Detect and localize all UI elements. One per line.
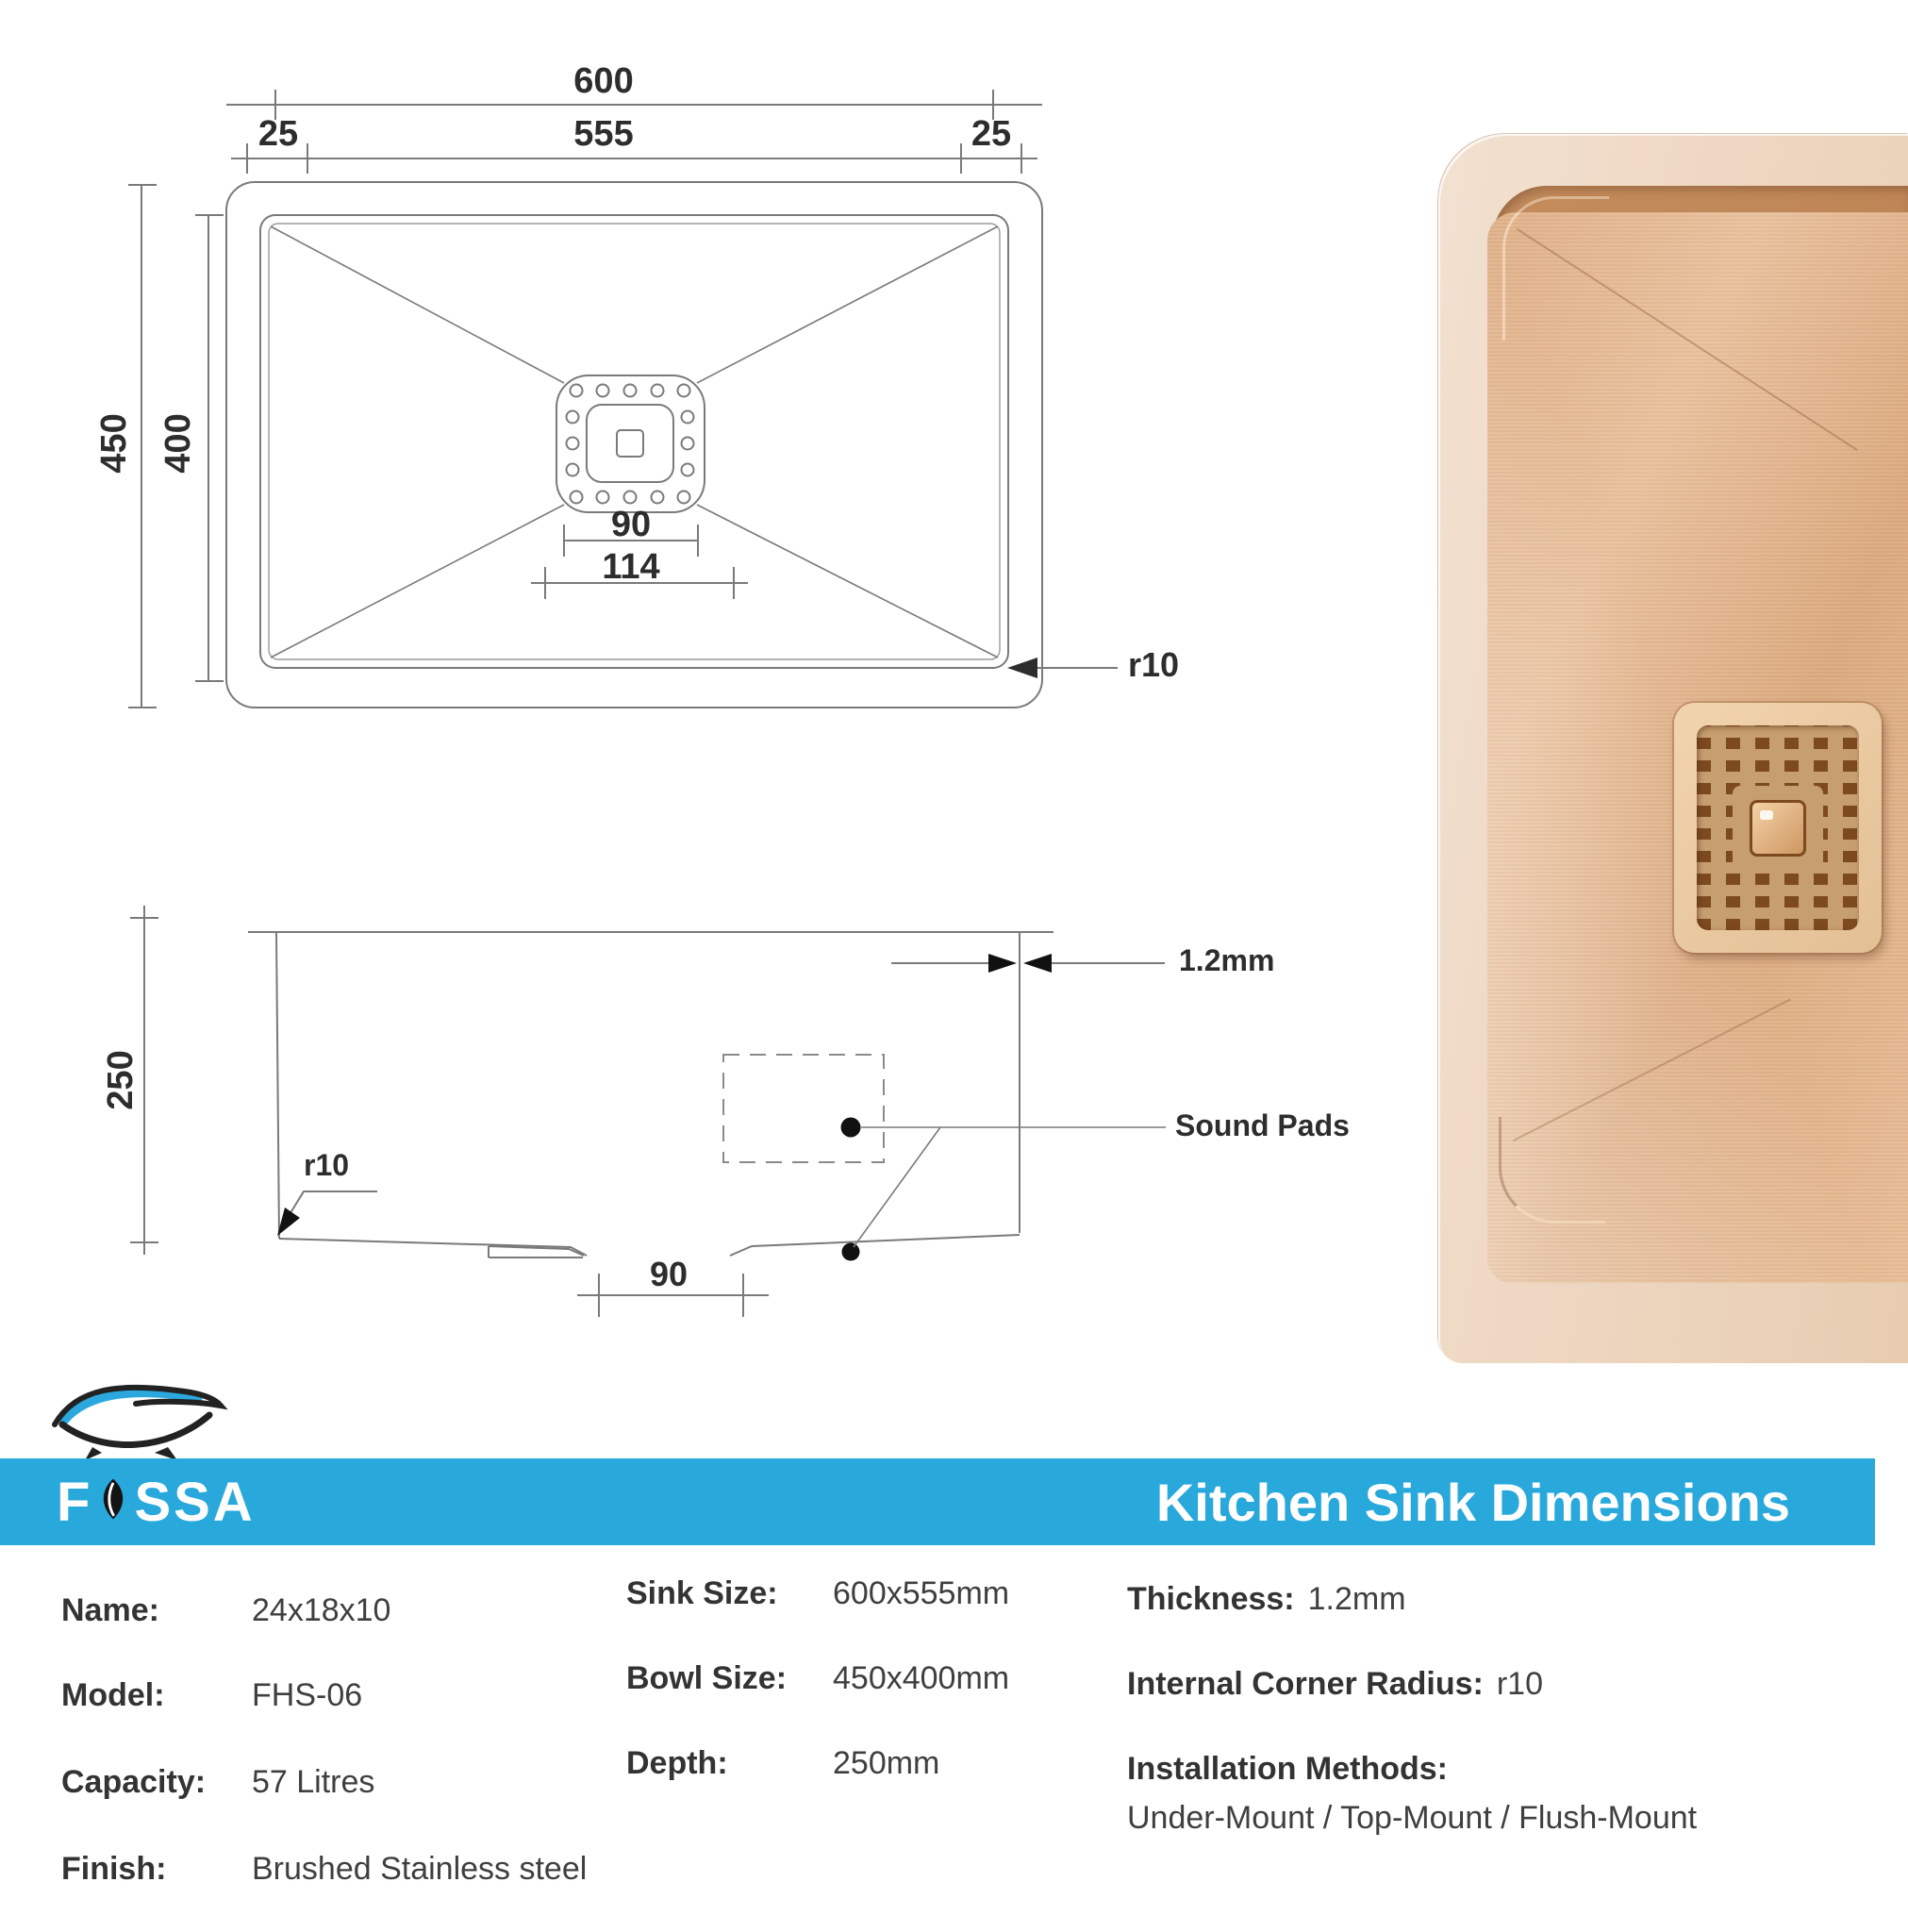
page-title: Kitchen Sink Dimensions: [1000, 1458, 1849, 1545]
spec-label: Capacity:: [61, 1764, 252, 1801]
spec-value: 1.2mm: [1308, 1581, 1406, 1618]
knob-highlight: [1760, 810, 1773, 820]
spec-value: r10: [1497, 1666, 1543, 1703]
dim-flange-left: 25: [238, 115, 319, 153]
drain-assembly: [1674, 703, 1882, 953]
spec-value: 250mm: [833, 1745, 939, 1782]
dim-flange-right: 25: [951, 115, 1032, 153]
spec-label: Finish:: [61, 1851, 252, 1888]
spec-label: Depth:: [626, 1745, 833, 1782]
dim-corner-radius-side: r10: [304, 1149, 349, 1181]
dim-overall-width: 600: [528, 62, 679, 100]
dim-bowl-depth: 400: [159, 373, 197, 514]
dim-drain-gap: 90: [611, 1256, 726, 1293]
spec-row-installation-label: Installation Methods:: [1127, 1751, 1461, 1788]
top-view-drawing: [128, 90, 1118, 708]
spec-value: 600x555mm: [833, 1575, 1009, 1612]
wordmark-f: F: [57, 1471, 92, 1534]
spec-label: Installation Methods:: [1127, 1751, 1448, 1788]
bathtub-logo-icon: [49, 1375, 228, 1462]
spec-value: 450x400mm: [833, 1660, 1009, 1697]
spec-label: Sink Size:: [626, 1575, 833, 1612]
spec-label: Name:: [61, 1592, 252, 1629]
dim-overall-depth: 450: [95, 373, 133, 514]
sound-pads-label: Sound Pads: [1175, 1109, 1350, 1141]
brand-wordmark: F SSA: [57, 1458, 256, 1545]
spec-label: Bowl Size:: [626, 1660, 833, 1697]
corner-fillet-highlight: [1502, 196, 1609, 341]
spec-row-depth: Depth: 250mm: [626, 1745, 939, 1782]
spec-row-corner-radius: Internal Corner Radius: r10: [1127, 1666, 1543, 1703]
dim-wall-thickness: 1.2mm: [1179, 944, 1274, 976]
spec-label: Thickness:: [1127, 1581, 1295, 1618]
spec-label: Model:: [61, 1677, 252, 1714]
drain-knob: [1750, 800, 1806, 857]
spec-value: 24x18x10: [252, 1592, 390, 1629]
drain-bolt-holes: [567, 385, 694, 504]
spec-label: Internal Corner Radius:: [1127, 1666, 1484, 1703]
infographic-canvas: 600 555 25 25 450 400 90 114 r10 250 r10…: [0, 0, 1908, 1932]
wordmark-ssa: SSA: [134, 1471, 255, 1534]
dim-corner-radius-top: r10: [1128, 649, 1179, 681]
spec-value: Under-Mount / Top-Mount / Flush-Mount: [1127, 1800, 1697, 1837]
spec-row-sink-size: Sink Size: 600x555mm: [626, 1575, 1009, 1612]
spec-value: FHS-06: [252, 1677, 362, 1714]
spec-row-thickness: Thickness: 1.2mm: [1127, 1581, 1406, 1618]
spec-row-model: Model: FHS-06: [61, 1677, 362, 1714]
dim-drain-plate-width: 114: [573, 548, 689, 586]
spec-row-capacity: Capacity: 57 Litres: [61, 1764, 374, 1801]
dim-depth: 250: [102, 1009, 140, 1151]
product-photo: [1412, 123, 1908, 1363]
spec-value: 57 Litres: [252, 1764, 374, 1801]
dim-bowl-width: 555: [528, 115, 679, 153]
dim-drain-width: 90: [573, 506, 689, 543]
spec-row-bowl-size: Bowl Size: 450x400mm: [626, 1660, 1009, 1697]
spec-row-installation-value: Under-Mount / Top-Mount / Flush-Mount: [1127, 1800, 1697, 1837]
leaf-icon: [94, 1472, 132, 1526]
spec-row-name: Name: 24x18x10: [61, 1592, 390, 1629]
spec-value: Brushed Stainless steel: [252, 1851, 587, 1888]
spec-row-finish: Finish: Brushed Stainless steel: [61, 1851, 587, 1888]
